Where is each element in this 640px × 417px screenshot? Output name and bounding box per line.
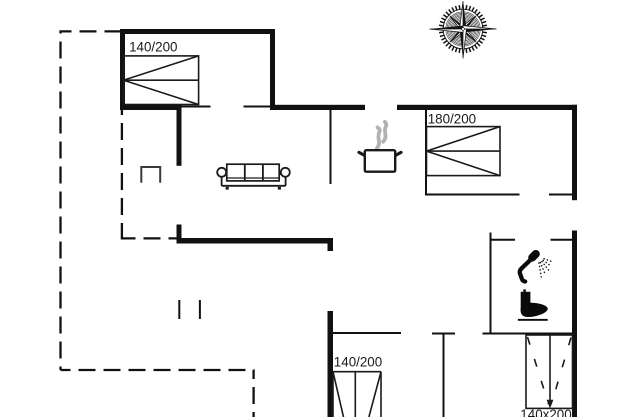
svg-text:180/200: 180/200 — [428, 111, 476, 126]
svg-text:140/200: 140/200 — [334, 355, 382, 370]
svg-text:140x200: 140x200 — [520, 407, 571, 417]
svg-text:140/200: 140/200 — [129, 39, 177, 54]
